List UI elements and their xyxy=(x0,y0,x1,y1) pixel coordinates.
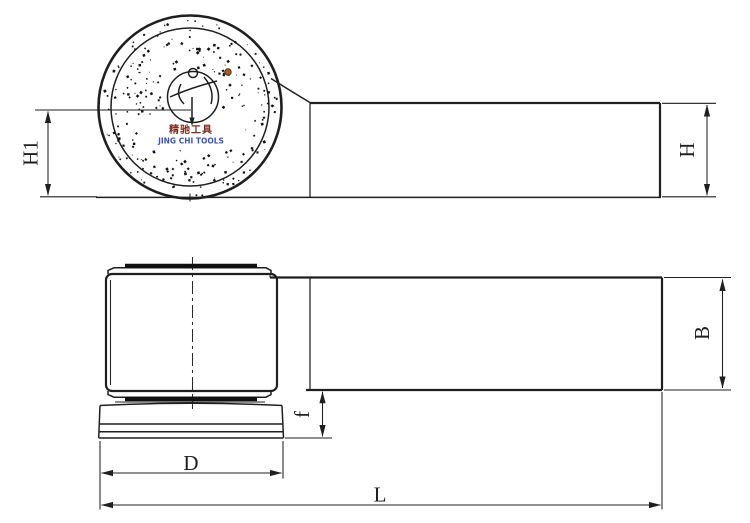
logo-figure-body xyxy=(204,77,212,104)
adjustment-dial xyxy=(99,403,284,438)
head-body-side xyxy=(106,274,277,391)
brand-logo xyxy=(168,69,219,127)
index-pin-dot xyxy=(225,69,231,75)
dial-left-edge xyxy=(99,406,100,439)
dimension-d: D xyxy=(100,441,283,510)
dimension-label-d: D xyxy=(183,451,198,475)
dimension-label-h1: H1 xyxy=(19,140,43,166)
head-inner-circle xyxy=(111,28,269,186)
side-view: f B D L xyxy=(99,257,731,510)
dial-top-edge xyxy=(100,403,282,405)
brand-text-english: JING CHI TOOLS xyxy=(157,137,224,146)
technical-drawing-page: 精驰工具 JING CHI TOOLS H1 H xyxy=(0,0,750,523)
logo-figure-leg xyxy=(179,84,184,104)
dimension-f: f xyxy=(285,392,332,438)
logo-ring xyxy=(168,72,219,123)
dimension-label-h: H xyxy=(675,142,699,157)
dimension-label-f: f xyxy=(290,411,314,418)
head-outer-circle xyxy=(99,16,282,199)
brand-text-chinese: 精驰工具 xyxy=(169,123,213,136)
knurl-texture xyxy=(103,20,278,197)
dial-right-edge xyxy=(282,406,284,439)
dimension-label-b: B xyxy=(690,326,714,340)
dimension-h: H xyxy=(662,103,716,197)
dimension-label-l: L xyxy=(374,483,387,507)
drawing-canvas: 精驰工具 JING CHI TOOLS H1 H xyxy=(0,0,750,523)
top-view: 精驰工具 JING CHI TOOLS H1 H xyxy=(19,16,717,202)
logo-figure-arm xyxy=(170,81,217,97)
logo-figure-head xyxy=(189,69,198,78)
dimension-b: B xyxy=(664,278,731,391)
